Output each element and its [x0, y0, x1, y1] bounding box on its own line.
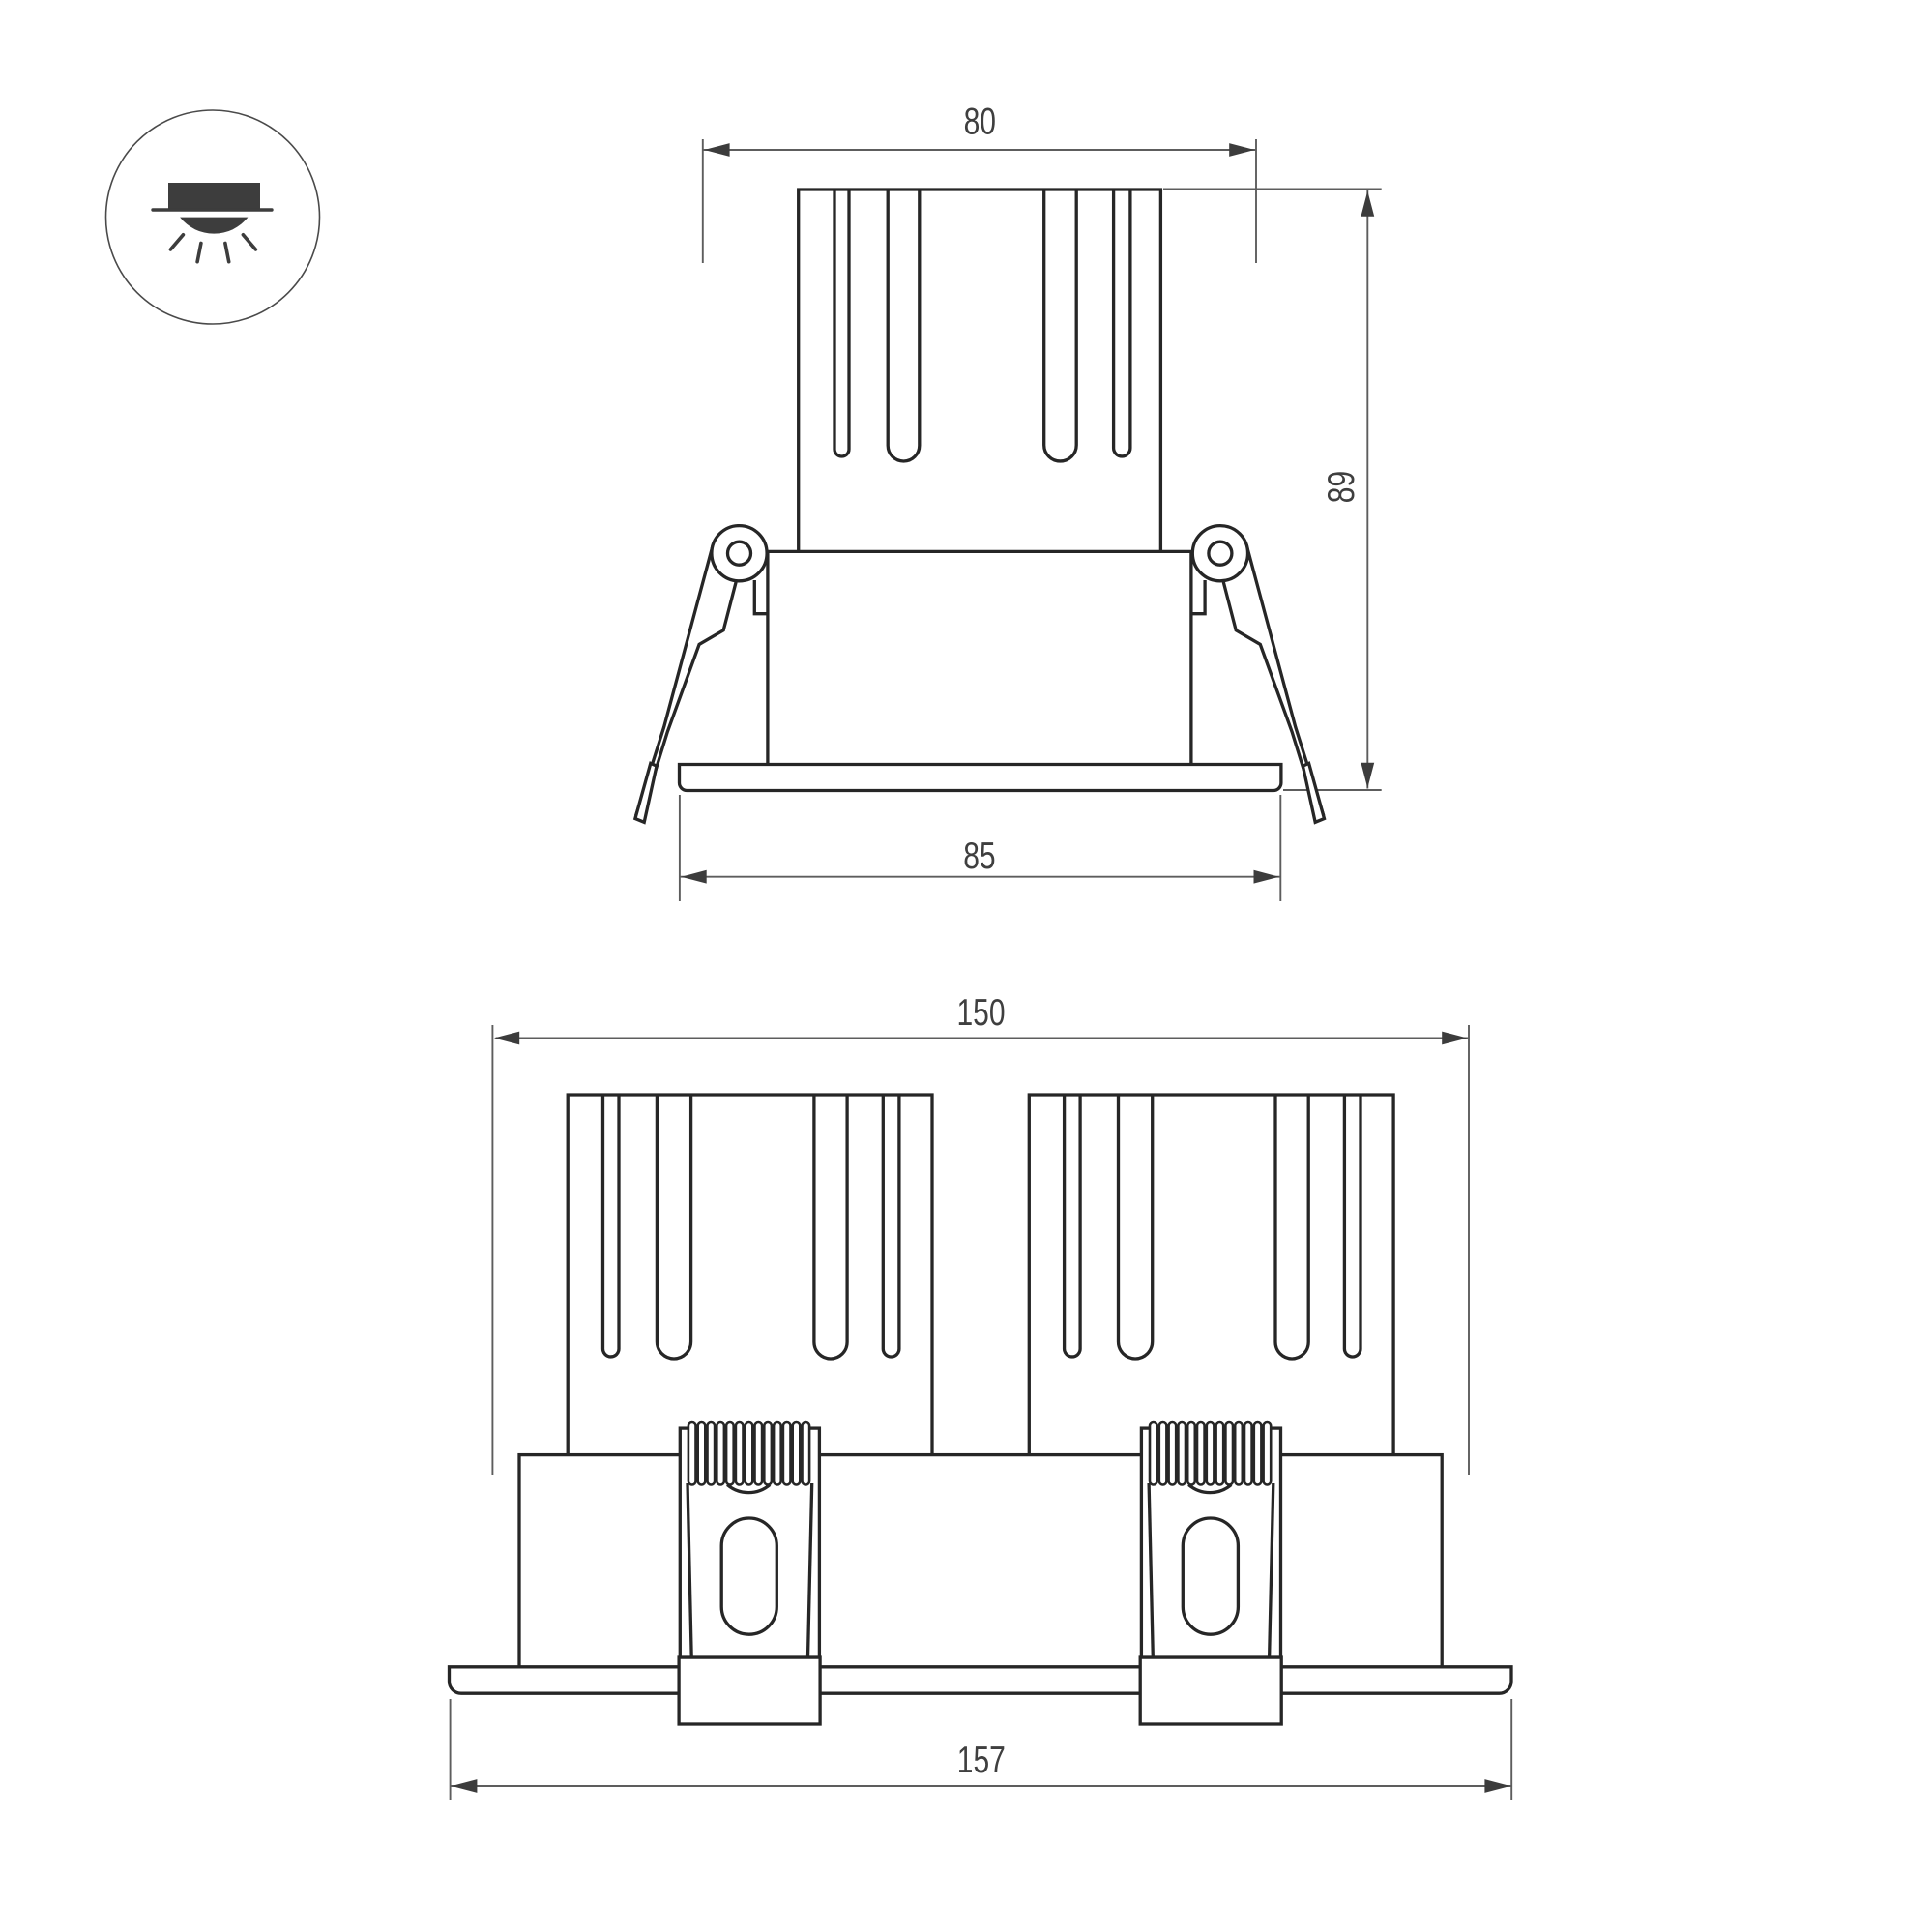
svg-text:85: 85	[963, 834, 995, 877]
svg-text:157: 157	[957, 1739, 1006, 1781]
svg-text:150: 150	[956, 991, 1005, 1034]
svg-text:89: 89	[1320, 471, 1362, 503]
svg-text:80: 80	[964, 101, 996, 143]
